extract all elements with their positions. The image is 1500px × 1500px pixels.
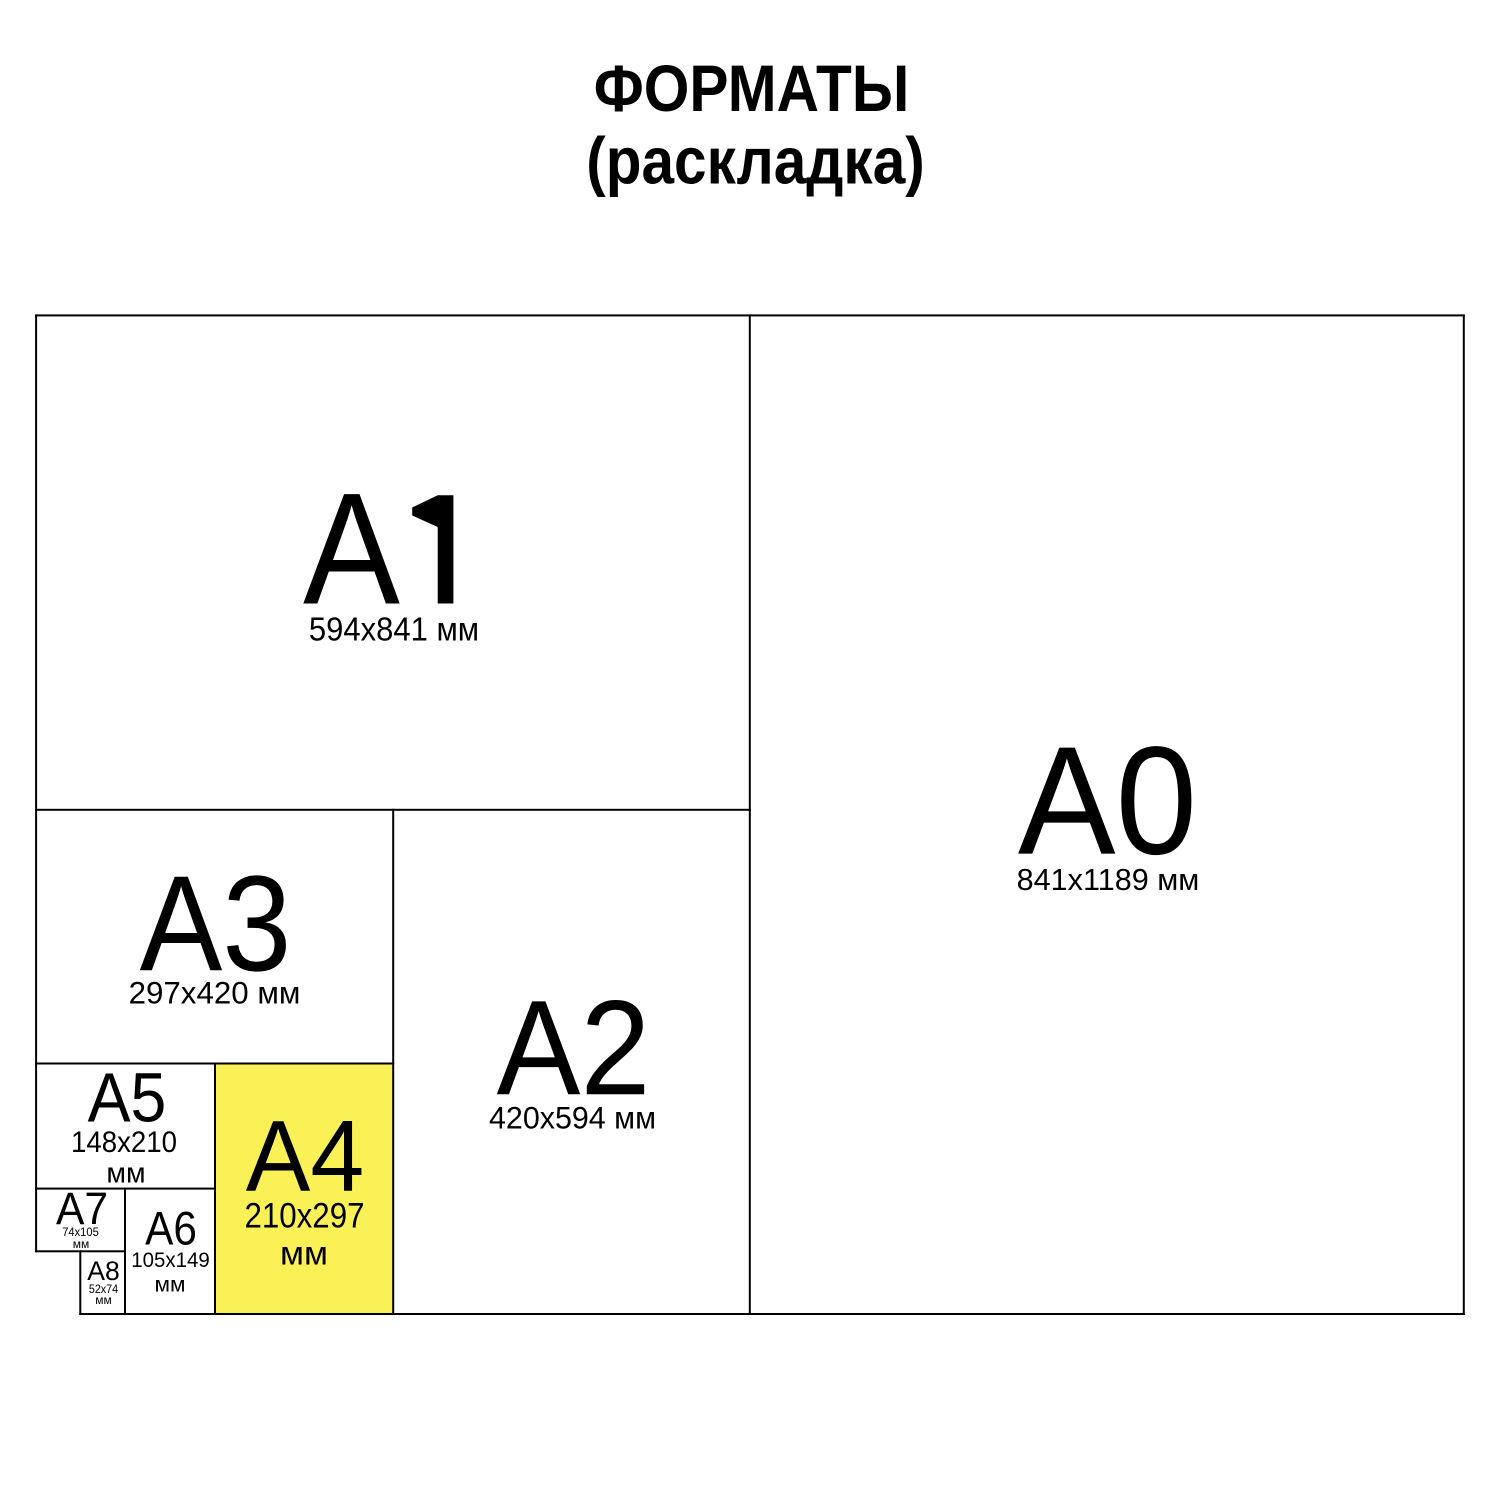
- svg-text:А6: А6: [145, 1202, 197, 1255]
- svg-text:420х594 мм: 420х594 мм: [489, 1099, 656, 1135]
- svg-text:мм: мм: [280, 1234, 328, 1271]
- svg-text:297х420 мм: 297х420 мм: [129, 975, 301, 1011]
- svg-text:148х210: 148х210: [71, 1126, 177, 1159]
- svg-text:мм: мм: [73, 1239, 90, 1251]
- svg-text:А8: А8: [87, 1256, 120, 1286]
- svg-text:А5: А5: [88, 1059, 167, 1137]
- svg-text:105х149: 105х149: [131, 1248, 209, 1272]
- svg-text:А0: А0: [1018, 715, 1197, 887]
- svg-text:(раскладка): (раскладка): [586, 123, 925, 197]
- svg-text:мм: мм: [106, 1158, 145, 1190]
- svg-text:ФОРМАТЫ: ФОРМАТЫ: [594, 51, 910, 125]
- svg-text:74х105: 74х105: [62, 1227, 99, 1239]
- svg-text:мм: мм: [155, 1272, 186, 1296]
- svg-text:52х74: 52х74: [89, 1284, 119, 1296]
- svg-text:210х297: 210х297: [244, 1196, 364, 1236]
- svg-text:841х1189 мм: 841х1189 мм: [1017, 862, 1200, 897]
- svg-text:594х841 мм: 594х841 мм: [309, 610, 479, 647]
- svg-text:мм: мм: [95, 1295, 112, 1307]
